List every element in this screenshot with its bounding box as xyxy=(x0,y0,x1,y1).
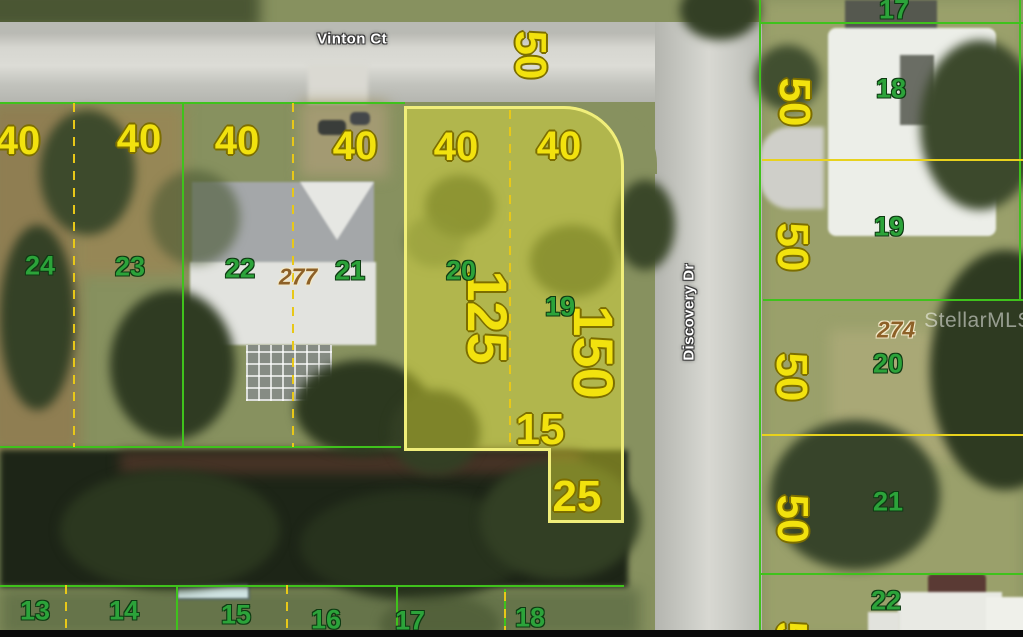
dimension-label: 15 xyxy=(516,408,565,452)
lot-line xyxy=(760,573,1023,575)
lot-number-label: 19 xyxy=(545,294,575,321)
lot-number-label: 24 xyxy=(25,253,55,280)
lot-number-label: 22 xyxy=(871,588,901,615)
dimension-label: 40 xyxy=(117,119,162,159)
road-discovery-dr xyxy=(655,22,762,637)
stellar-mls-watermark: StellarMLS xyxy=(924,309,1023,333)
dimension-label: 40 xyxy=(537,126,582,166)
lot-line xyxy=(0,102,405,104)
lot-number-label: 14 xyxy=(109,598,139,625)
lot-line-yellow xyxy=(762,159,1023,161)
dimension-label: 40 xyxy=(0,121,40,161)
lot-line-dashed xyxy=(73,103,75,447)
dimension-label: 25 xyxy=(553,475,602,519)
lot-number-label: 21 xyxy=(873,489,903,516)
lot-number-label: 18 xyxy=(515,605,545,632)
lot-number-label: 20 xyxy=(446,258,476,285)
lot-number-label: 17 xyxy=(879,0,909,24)
dimension-label: 50 xyxy=(508,31,552,80)
lot-number-label: 13 xyxy=(20,598,50,625)
parcel-id-label: 277 xyxy=(279,266,317,289)
lot-number-label: 21 xyxy=(335,258,365,285)
tree-canopy xyxy=(110,290,235,440)
image-bottom-border xyxy=(0,630,1023,637)
tree-canopy xyxy=(150,170,240,265)
tree-canopy xyxy=(615,180,675,270)
lot-number-label: 22 xyxy=(225,256,255,283)
dimension-label: 50 xyxy=(770,495,814,544)
street-name-label: Vinton Ct xyxy=(317,32,387,47)
dimension-label: 40 xyxy=(434,127,479,167)
dimension-label: 40 xyxy=(333,126,378,166)
dimension-label: 50 xyxy=(770,223,814,272)
dimension-label: 50 xyxy=(772,78,816,127)
house-277-gable xyxy=(300,182,374,240)
lot-line xyxy=(0,585,624,587)
parcel-id-label: 274 xyxy=(877,319,915,342)
lot-number-label: 23 xyxy=(115,254,145,281)
driveway-center-house xyxy=(308,64,368,104)
dimension-label: 40 xyxy=(215,121,260,161)
dimension-label: 50 xyxy=(769,353,813,402)
lot-number-label: 18 xyxy=(876,76,906,103)
lot-number-label: 19 xyxy=(874,214,904,241)
lot-line xyxy=(763,299,1023,301)
lot-number-label: 15 xyxy=(221,602,251,629)
driveway-right-house xyxy=(760,127,824,209)
lot-line xyxy=(0,446,401,448)
lot-line xyxy=(182,102,184,448)
parcel-map: 4040404040405012515015255050505050242322… xyxy=(0,0,1023,637)
lot-line xyxy=(1019,0,1021,300)
lot-line xyxy=(759,0,761,637)
tree-canopy xyxy=(60,470,280,590)
street-name-label: Discovery Dr xyxy=(682,263,697,360)
lot-line-yellow xyxy=(762,434,1023,436)
lot-number-label: 20 xyxy=(873,351,903,378)
